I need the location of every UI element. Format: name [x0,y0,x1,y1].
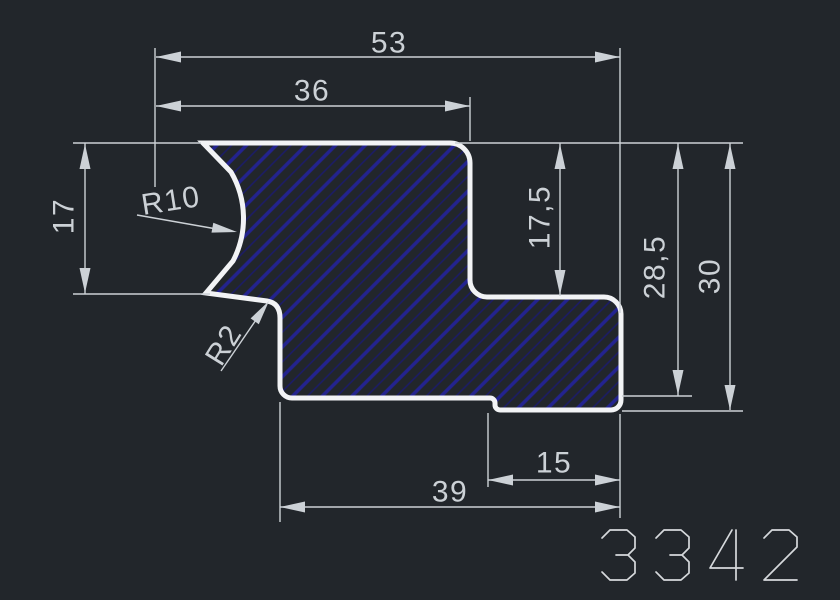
dim-label-right-inner-height: 28,5 [639,235,672,299]
dim-label-step-height: 17,5 [524,185,557,249]
dim-label-bottom-inner-width: 15 [536,447,572,480]
dim-label-total-width: 53 [371,27,407,60]
dim-label-left-height: 17 [48,198,81,234]
dim-label-bottom-width: 39 [432,476,468,509]
dim-label-right-outer-height: 30 [694,258,727,294]
cad-drawing-canvas: 53 36 17 17,5 28,5 30 39 15 R10 R2 [0,0,840,600]
cad-viewport: 53 36 17 17,5 28,5 30 39 15 R10 R2 [0,0,840,600]
dim-label-top-width: 36 [294,75,330,108]
